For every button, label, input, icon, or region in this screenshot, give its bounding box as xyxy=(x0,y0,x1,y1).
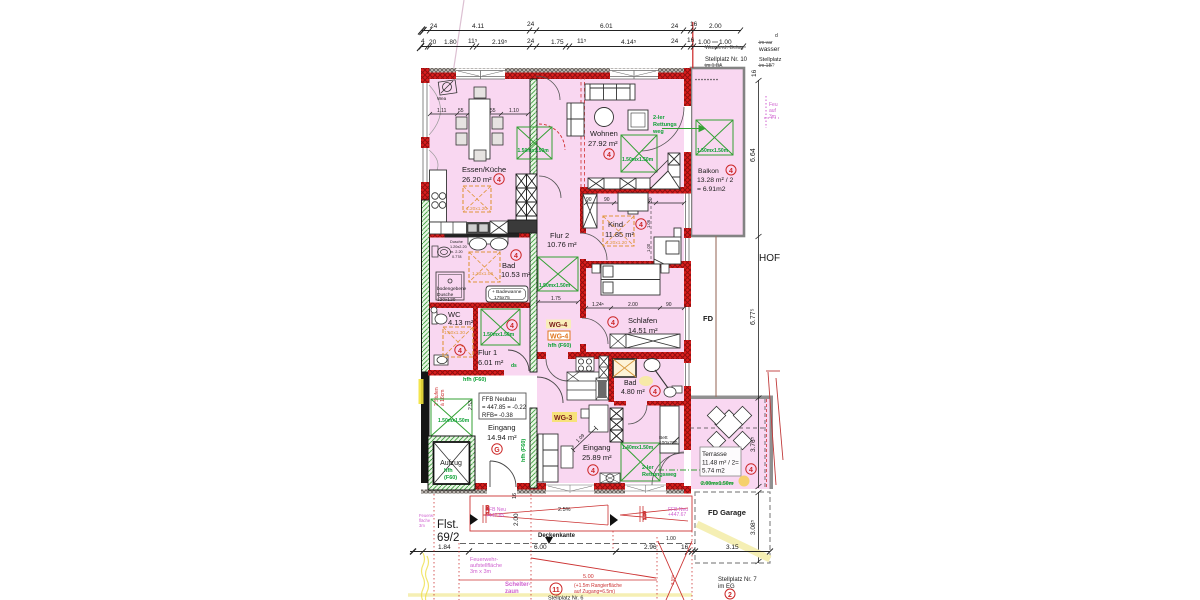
svg-text:90: 90 xyxy=(604,197,610,203)
svg-text:1.80: 1.80 xyxy=(444,39,457,46)
svg-text:69/2: 69/2 xyxy=(437,532,459,544)
svg-text:3.5%: 3.5% xyxy=(670,575,675,585)
svg-text:2.00mx1.50m: 2.00mx1.50m xyxy=(701,481,734,487)
svg-text:Flur 1: Flur 1 xyxy=(478,348,497,357)
svg-text:3.08⁵: 3.08⁵ xyxy=(750,519,757,535)
svg-text:FD Garage: FD Garage xyxy=(708,508,746,517)
svg-text:Rettungs: Rettungs xyxy=(653,122,677,128)
svg-text:Wohnen: Wohnen xyxy=(590,129,618,138)
svg-text:1.50mx1.50m: 1.50mx1.50m xyxy=(438,418,470,424)
svg-text:Stellplatz Nr. 6: Stellplatz Nr. 6 xyxy=(548,596,583,600)
svg-text:1.50mx1.50m: 1.50mx1.50m xyxy=(622,157,654,163)
svg-text:Flst.: Flst. xyxy=(437,519,459,531)
svg-text:4: 4 xyxy=(591,468,595,475)
svg-text:= 6.91m2: = 6.91m2 xyxy=(697,186,726,193)
svg-text:2.00: 2.00 xyxy=(513,513,520,526)
svg-text:hfh (F60): hfh (F60) xyxy=(463,377,486,383)
svg-text:16: 16 xyxy=(690,21,698,28)
svg-text:WG-4: WG-4 xyxy=(550,334,568,341)
svg-text:m. 2.20: m. 2.20 xyxy=(450,250,463,254)
svg-text:1.00: 1.00 xyxy=(666,536,676,542)
svg-text:4.11: 4.11 xyxy=(472,23,485,30)
svg-text:13.28 m² / 2: 13.28 m² / 2 xyxy=(697,177,733,184)
svg-text:Rettungsweg: Rettungsweg xyxy=(642,472,677,478)
svg-text:4.14⁵: 4.14⁵ xyxy=(621,39,637,46)
svg-text:1.50: 1.50 xyxy=(485,505,490,514)
svg-text:5.00: 5.00 xyxy=(583,574,594,580)
svg-text:4.13 m²: 4.13 m² xyxy=(448,318,474,327)
svg-text:hfh (F60): hfh (F60) xyxy=(548,343,571,349)
svg-text:Wasserd. Belag: Wasserd. Belag xyxy=(705,45,744,51)
svg-text:24: 24 xyxy=(671,38,679,45)
svg-text:4: 4 xyxy=(639,222,643,229)
svg-text:1.20x2.20: 1.20x2.20 xyxy=(450,245,467,249)
svg-text:1.50mx1.50m: 1.50mx1.50m xyxy=(483,332,515,338)
svg-text:30: 30 xyxy=(648,197,654,203)
svg-text:14.94 m²: 14.94 m² xyxy=(487,433,517,442)
svg-text:1.50mx1.50m: 1.50mx1.50m xyxy=(697,148,729,154)
svg-text:1.50x1.30: 1.50x1.30 xyxy=(444,330,465,336)
svg-text:(F60): (F60) xyxy=(444,475,457,481)
svg-text:24: 24 xyxy=(527,38,535,45)
svg-text:Terrasse: Terrasse xyxy=(702,451,727,458)
svg-text:im 1B?: im 1B? xyxy=(759,63,775,69)
svg-text:= 447.85 = -0.22: = 447.85 = -0.22 xyxy=(482,405,527,411)
svg-text:1.10: 1.10 xyxy=(509,108,519,114)
svg-text:25.89 m²: 25.89 m² xyxy=(582,453,612,462)
svg-text:120x120: 120x120 xyxy=(437,297,456,303)
svg-text:3.76⁵: 3.76⁵ xyxy=(750,436,757,452)
svg-text:20: 20 xyxy=(429,39,437,46)
svg-text:1.24⁵: 1.24⁵ xyxy=(592,302,604,308)
svg-text:1.20x1.00: 1.20x1.00 xyxy=(472,271,493,277)
svg-text:11.85 m²: 11.85 m² xyxy=(605,230,635,239)
svg-text:Flur 2: Flur 2 xyxy=(550,231,569,240)
svg-text:2.00: 2.00 xyxy=(628,302,638,308)
svg-text:3m: 3m xyxy=(769,114,776,120)
svg-text:FFB Neubau: FFB Neubau xyxy=(482,397,516,403)
svg-text:zaun: zaun xyxy=(505,589,519,595)
svg-text:27.92 m²: 27.92 m² xyxy=(588,139,618,148)
svg-text:11⁵: 11⁵ xyxy=(577,38,587,45)
svg-text:2.96: 2.96 xyxy=(644,544,657,551)
svg-text:4: 4 xyxy=(653,389,657,396)
svg-text:55: 55 xyxy=(458,108,464,114)
svg-text:2: 2 xyxy=(728,592,732,599)
svg-text:RFB= -0.38: RFB= -0.38 xyxy=(482,413,514,419)
svg-text:2.53: 2.53 xyxy=(468,400,474,410)
svg-text:10.53 m²: 10.53 m² xyxy=(501,270,531,279)
svg-text:1.11: 1.11 xyxy=(437,108,447,114)
svg-text:5.74 m2: 5.74 m2 xyxy=(702,468,725,475)
svg-text:Kind: Kind xyxy=(608,220,623,229)
svg-text:Bad: Bad xyxy=(624,380,637,387)
svg-text:Eingang: Eingang xyxy=(488,423,516,432)
svg-text:4: 4 xyxy=(458,348,462,355)
svg-text:6.01 m²: 6.01 m² xyxy=(478,358,504,367)
svg-text:11: 11 xyxy=(552,587,560,594)
svg-text:+ Badewanne: + Badewanne xyxy=(492,289,522,295)
svg-text:24: 24 xyxy=(430,23,438,30)
svg-text:4: 4 xyxy=(729,168,733,175)
svg-text:55: 55 xyxy=(490,108,496,114)
svg-text:bodengebene: bodengebene xyxy=(437,286,467,292)
svg-text:3m: 3m xyxy=(419,523,425,528)
svg-text:wasser: wasser xyxy=(758,46,780,53)
svg-text:hfh (F60): hfh (F60) xyxy=(521,439,527,462)
svg-text:WG-4: WG-4 xyxy=(549,322,567,329)
svg-text:+447.67: +447.67 xyxy=(668,512,686,518)
svg-text:WG-3: WG-3 xyxy=(554,415,572,422)
svg-text:Aufzug: Aufzug xyxy=(440,460,462,467)
svg-text:Balkon: Balkon xyxy=(698,168,719,175)
svg-text:90: 90 xyxy=(586,197,592,203)
svg-text:6.00: 6.00 xyxy=(534,544,547,551)
svg-text:11⁵: 11⁵ xyxy=(468,38,478,45)
svg-text:ds: ds xyxy=(511,363,517,369)
svg-text:Schlafen: Schlafen xyxy=(628,316,657,325)
svg-text:Essen/Küche: Essen/Küche xyxy=(462,165,506,174)
svg-text:auf Zugang=6.5m): auf Zugang=6.5m) xyxy=(574,589,615,595)
svg-text:d: d xyxy=(775,33,778,39)
svg-text:2.19⁵: 2.19⁵ xyxy=(492,39,508,46)
svg-text:Deckenkante: Deckenkante xyxy=(538,533,576,539)
svg-text:16: 16 xyxy=(512,493,518,499)
svg-text:90: 90 xyxy=(666,302,672,308)
svg-text:1.20x1.20: 1.20x1.20 xyxy=(466,206,487,212)
svg-text:Dusche: Dusche xyxy=(450,240,463,244)
svg-text:FD: FD xyxy=(703,314,714,323)
svg-text:11.48 m² / 2=: 11.48 m² / 2= xyxy=(702,460,739,467)
svg-text:im 1 BA: im 1 BA xyxy=(705,63,723,69)
svg-text:4: 4 xyxy=(510,323,514,330)
svg-text:16: 16 xyxy=(681,544,689,551)
svg-text:1.40mx1.50m: 1.40mx1.50m xyxy=(622,445,654,451)
svg-text:10.76 m²: 10.76 m² xyxy=(547,240,577,249)
svg-text:1.06: 1.06 xyxy=(646,219,651,228)
svg-text:HOF: HOF xyxy=(759,253,780,264)
svg-text:4: 4 xyxy=(607,152,611,159)
svg-text:4: 4 xyxy=(611,320,615,327)
svg-text:weg: weg xyxy=(652,129,664,135)
svg-text:3m x 3m: 3m x 3m xyxy=(470,569,492,575)
svg-text:4.80 m²: 4.80 m² xyxy=(621,389,645,396)
svg-text:1.00: 1.00 xyxy=(642,511,647,520)
svg-text:1.20x1.20: 1.20x1.20 xyxy=(606,240,627,246)
svg-text:26.20 m²: 26.20 m² xyxy=(462,175,492,184)
svg-text:Schelter-: Schelter- xyxy=(505,582,531,588)
svg-text:6.64: 6.64 xyxy=(750,148,757,162)
svg-text:1.75: 1.75 xyxy=(551,39,564,46)
svg-text:2-ler: 2-ler xyxy=(642,465,654,471)
svg-text:Eingang: Eingang xyxy=(583,443,611,452)
svg-text:175x75: 175x75 xyxy=(494,295,510,301)
svg-text:4: 4 xyxy=(514,253,518,260)
svg-text:24: 24 xyxy=(527,21,535,28)
svg-text:2.5%: 2.5% xyxy=(558,507,571,513)
svg-text:hfh: hfh xyxy=(444,468,453,474)
svg-text:4: 4 xyxy=(749,467,753,474)
svg-text:Wea: Wea xyxy=(437,96,447,101)
svg-text:6.01: 6.01 xyxy=(600,23,613,30)
svg-text:16: 16 xyxy=(751,69,758,77)
svg-text:4: 4 xyxy=(497,177,501,184)
svg-text:Bad: Bad xyxy=(502,261,515,270)
svg-text:1.84: 1.84 xyxy=(438,544,451,551)
svg-text:G: G xyxy=(494,447,500,454)
svg-text:Stellplatz Nr. 7: Stellplatz Nr. 7 xyxy=(718,577,757,583)
svg-text:6.77⁵: 6.77⁵ xyxy=(750,308,757,325)
svg-text:100x200: 100x200 xyxy=(659,440,678,446)
svg-text:1.00: 1.00 xyxy=(646,243,651,252)
svg-text:16: 16 xyxy=(687,37,695,44)
svg-text:1.50mx1.50m: 1.50mx1.50m xyxy=(518,148,550,154)
svg-text:2.00: 2.00 xyxy=(709,23,722,30)
svg-text:0.778: 0.778 xyxy=(452,255,462,259)
svg-text:24: 24 xyxy=(671,23,679,30)
svg-text:2-ler: 2-ler xyxy=(653,115,665,121)
svg-text:1.50mx1.50m: 1.50mx1.50m xyxy=(539,283,571,289)
svg-text:1.75: 1.75 xyxy=(551,296,561,302)
svg-text:4: 4 xyxy=(421,38,425,45)
svg-text:3.15: 3.15 xyxy=(726,544,739,551)
svg-text:à 16cm: à 16cm xyxy=(440,390,446,406)
